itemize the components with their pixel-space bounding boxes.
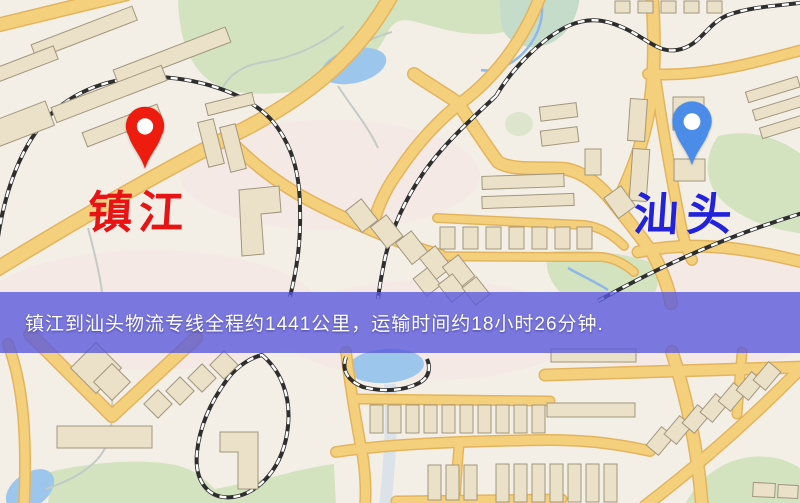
origin-label: 镇江 — [86, 176, 193, 241]
route-summary-text: 镇江到汕头物流专线全程约1441公里，运输时间约18小时26分钟. — [25, 309, 604, 336]
blue-pin-icon[interactable] — [668, 96, 716, 167]
map-canvas[interactable]: 镇江 汕头 镇江到汕头物流专线全程约1441公里，运输时间约18小时26分钟. — [0, 0, 800, 503]
destination-label: 汕头 — [632, 178, 743, 243]
red-pin-icon[interactable] — [122, 101, 168, 171]
map-artwork — [0, 0, 800, 503]
info-banner: 镇江到汕头物流专线全程约1441公里，运输时间约18小时26分钟. — [0, 292, 800, 353]
